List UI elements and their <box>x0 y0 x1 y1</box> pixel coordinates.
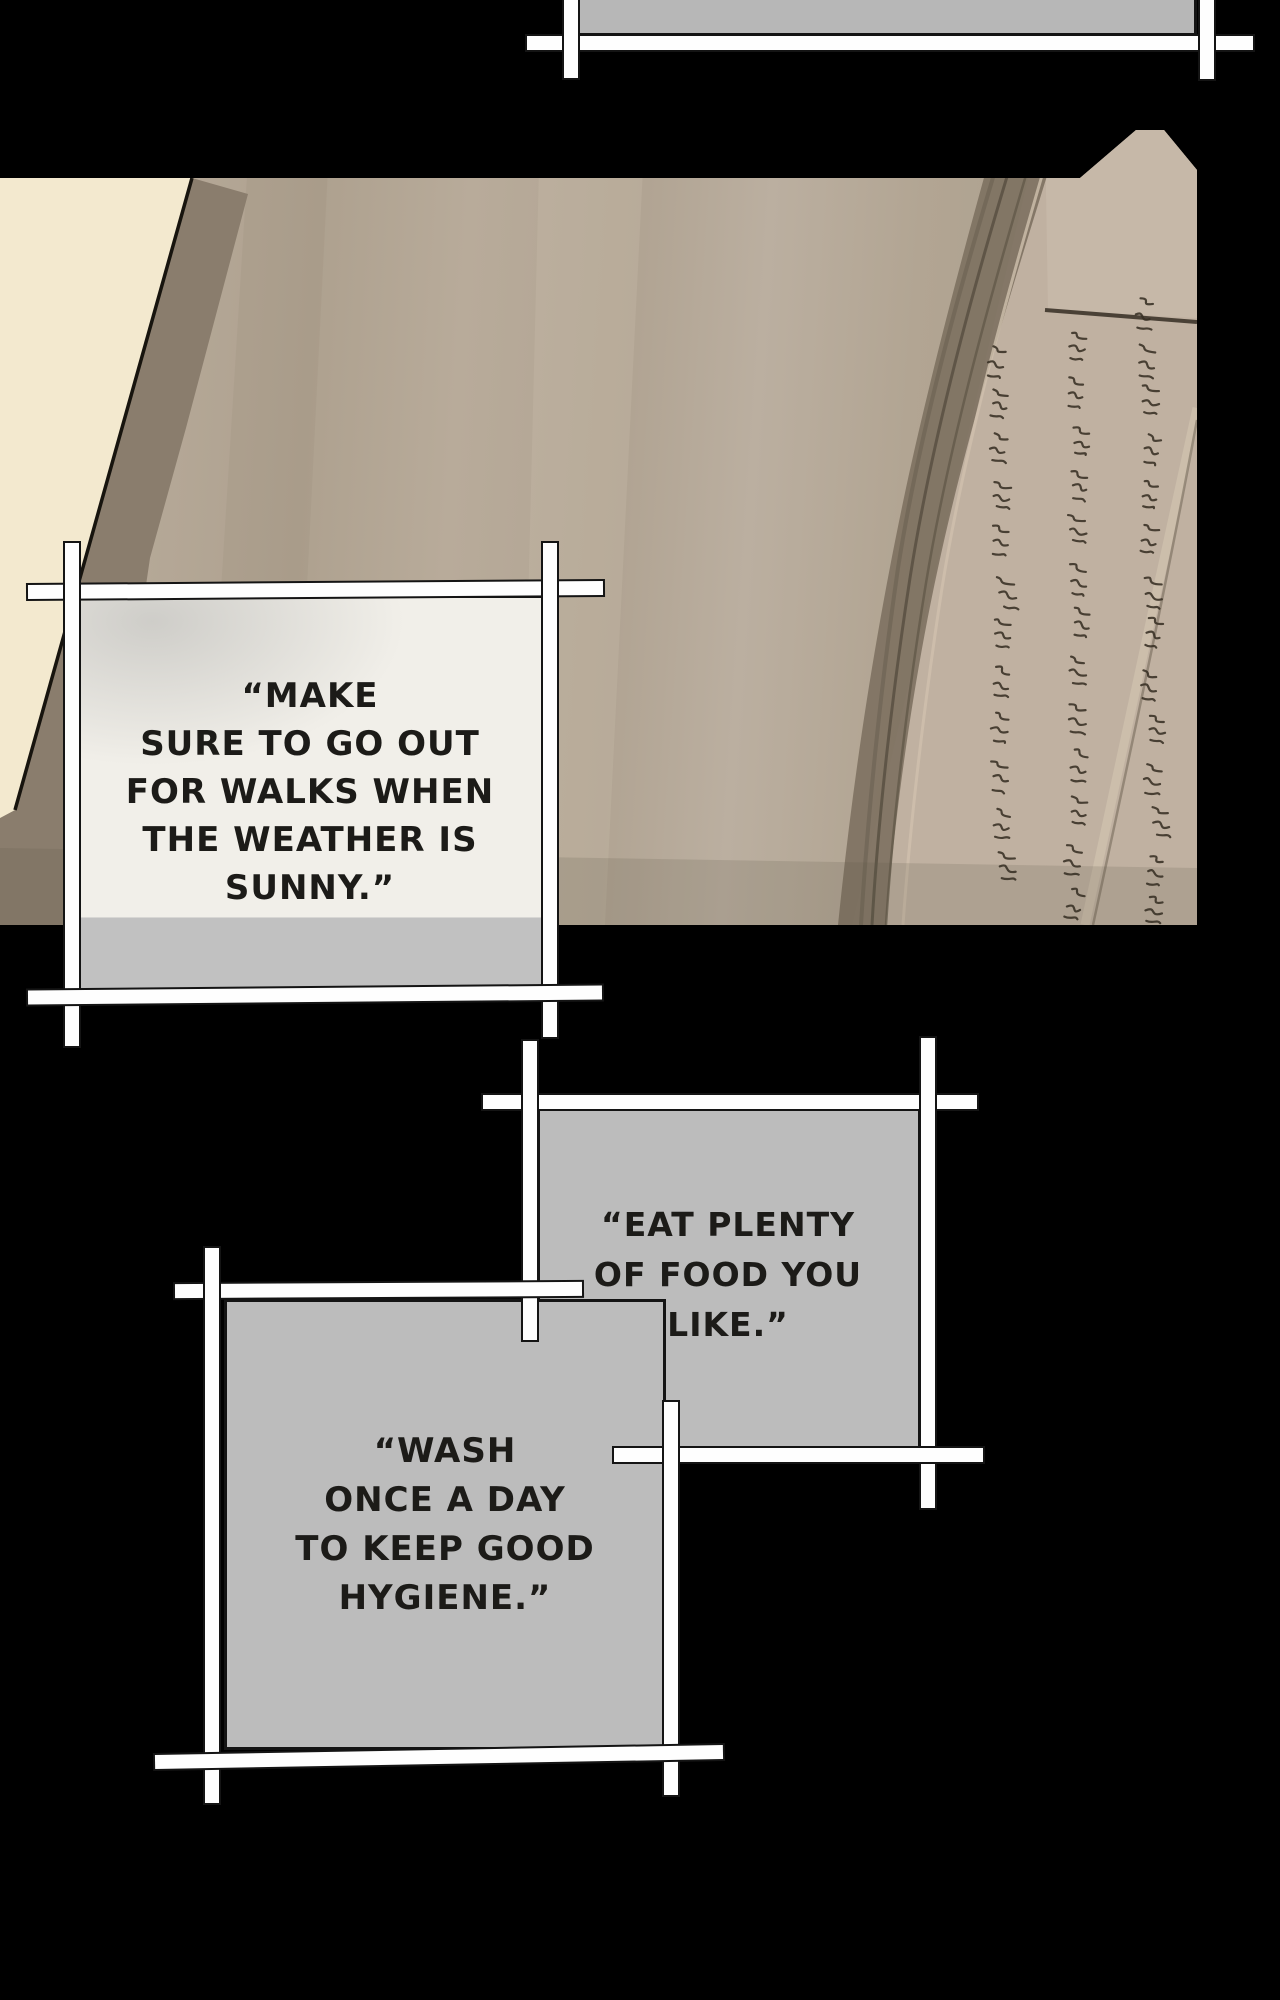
top-panel-frame-right-tick <box>1200 0 1214 79</box>
caption-1-frame-right <box>543 543 557 1037</box>
caption-3-frame-left <box>205 1248 219 1803</box>
top-panel-frame-left-tick <box>564 0 578 78</box>
top-panel-frame-bottom <box>527 36 1253 50</box>
caption-1-frame-left <box>65 543 79 1046</box>
caption-2-frame-top <box>483 1095 977 1109</box>
caption-1-text: “MAKE SURE TO GO OUT FOR WALKS WHEN THE … <box>80 672 540 912</box>
caption-3-frame-top <box>175 1282 582 1298</box>
comic-page: “MAKE SURE TO GO OUT FOR WALKS WHEN THE … <box>0 0 1280 2000</box>
caption-2-frame-right <box>921 1038 935 1508</box>
caption-3-frame-right <box>664 1402 678 1795</box>
top-partial-panel <box>575 0 1197 36</box>
caption-3-text: “WASH ONCE A DAY TO KEEP GOOD HYGIENE.” <box>227 1427 663 1623</box>
caption-2-text: “EAT PLENTY OF FOOD YOU LIKE.” <box>538 1200 918 1350</box>
